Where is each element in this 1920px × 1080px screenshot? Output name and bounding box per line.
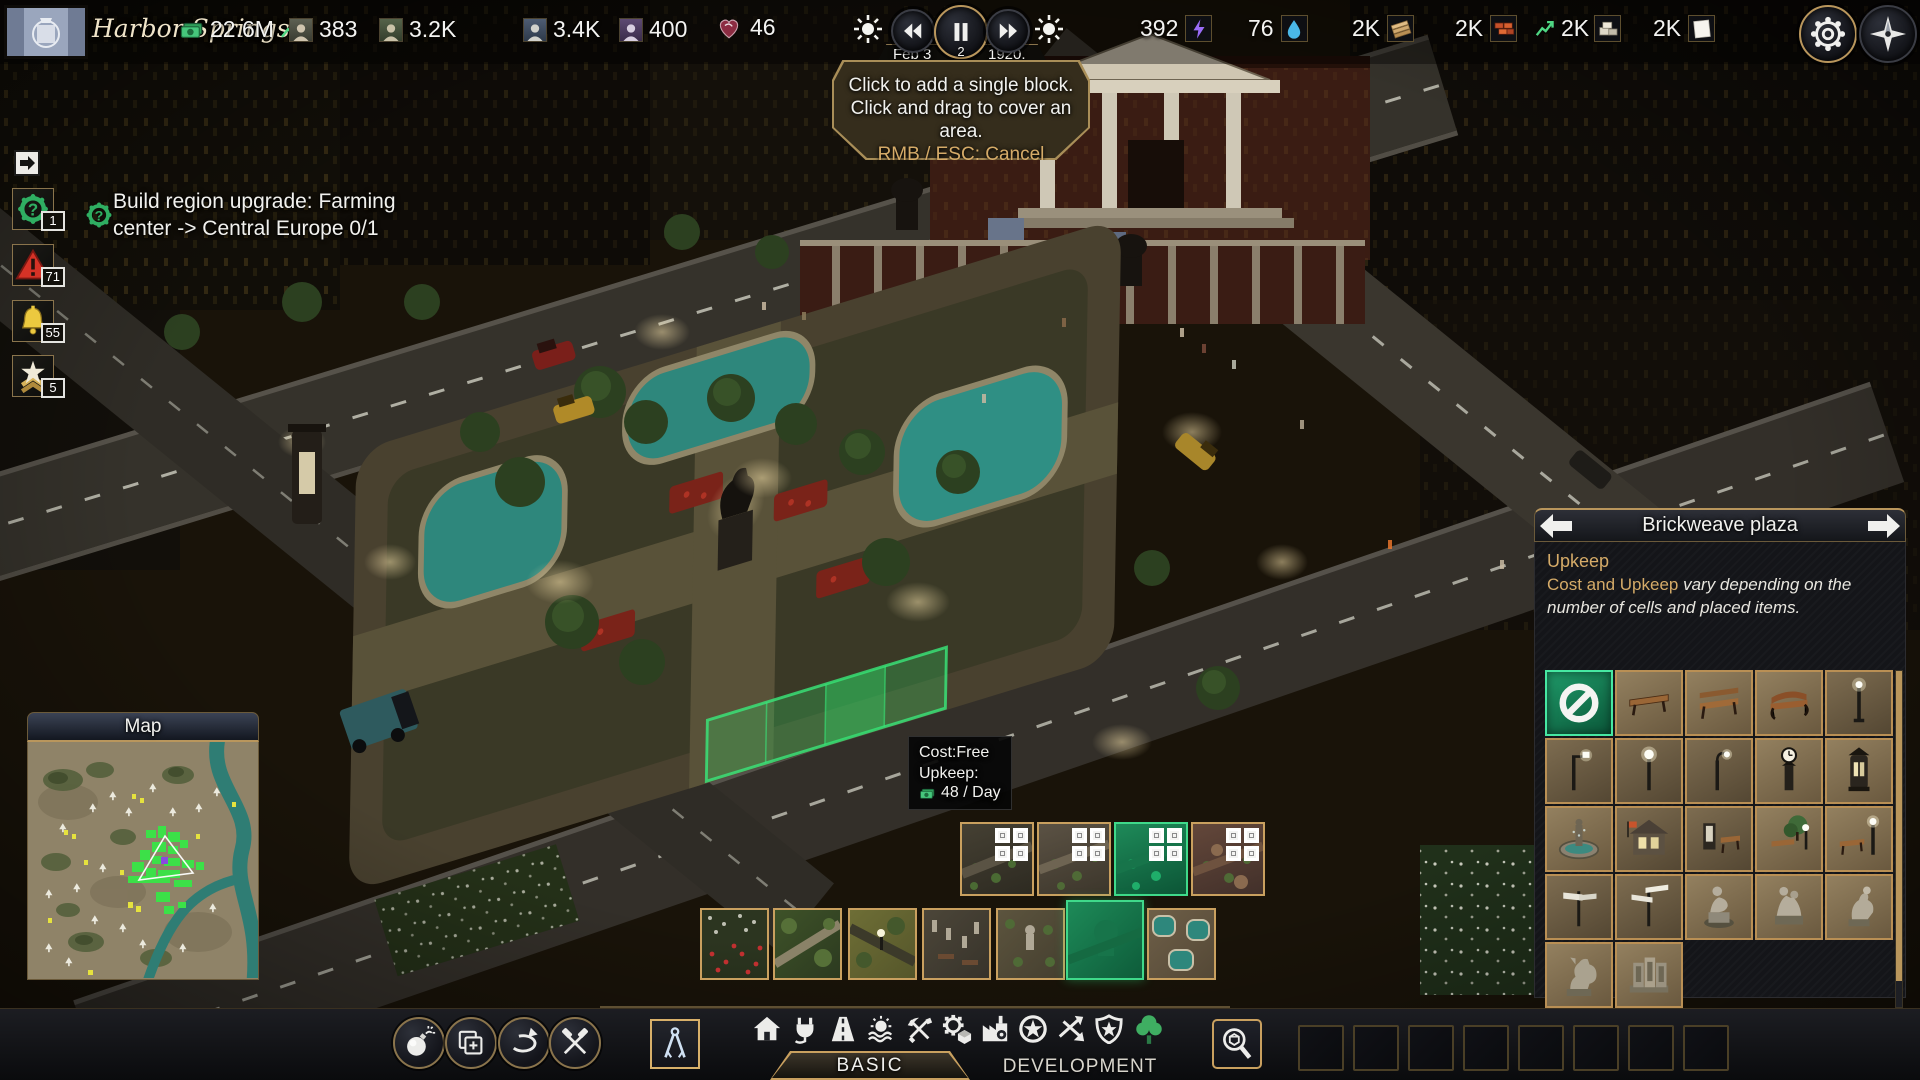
item-bench-simple[interactable] xyxy=(1615,670,1683,736)
quickbar-slot-4[interactable] xyxy=(1463,1025,1509,1071)
style-thumb-pools[interactable] xyxy=(1147,908,1216,980)
item-remove-item[interactable] xyxy=(1545,670,1613,736)
scrollbar-thumb[interactable] xyxy=(1896,671,1902,981)
game-window: Harbor Springs 22.6M 383 3.2K 3.4K 400 4… xyxy=(0,0,1920,1080)
water-icon xyxy=(1281,15,1308,42)
category-parks-icon[interactable] xyxy=(1132,1012,1166,1046)
item-street-lamp-arm[interactable] xyxy=(1545,738,1613,804)
item-signpost-cross[interactable] xyxy=(1615,874,1683,940)
elite-portrait-icon xyxy=(619,18,643,42)
upkeep-heading: Upkeep xyxy=(1547,550,1893,573)
item-bench-backed[interactable] xyxy=(1685,670,1753,736)
category-safety-icon[interactable] xyxy=(1094,1014,1124,1044)
category-residential-icon[interactable] xyxy=(752,1014,782,1044)
map-panel-header[interactable]: Map xyxy=(27,712,259,742)
item-grid xyxy=(1545,670,1893,1008)
item-street-lamp-curved[interactable] xyxy=(1685,738,1753,804)
block-variant-2[interactable] xyxy=(1037,822,1111,896)
speed-label: 2 xyxy=(953,44,969,59)
speed-up-button[interactable] xyxy=(986,9,1030,53)
stone-icon xyxy=(1594,15,1621,42)
tab-development[interactable]: DEVELOPMENT xyxy=(980,1053,1180,1080)
notifications-button[interactable]: 55 xyxy=(12,300,54,342)
quickbar-slot-5[interactable] xyxy=(1518,1025,1564,1071)
quickbar-slot-7[interactable] xyxy=(1628,1025,1674,1071)
item-statue-rearing[interactable] xyxy=(1825,874,1893,940)
style-thumb-selected[interactable] xyxy=(1066,900,1144,980)
style-thumb-park[interactable] xyxy=(848,908,917,980)
category-industry-icon[interactable] xyxy=(980,1014,1010,1044)
bricks-readout: 2K xyxy=(1455,15,1517,42)
item-bench-ornate[interactable] xyxy=(1755,670,1823,736)
build-item-panel: Brickweave plaza Upkeep Cost and Upkeep … xyxy=(1534,508,1906,998)
demolish-button[interactable] xyxy=(393,1017,445,1069)
approval-readout: 46 xyxy=(716,14,776,41)
navigation-button[interactable] xyxy=(1859,5,1917,63)
tab-basic-label: BASIC xyxy=(836,1055,903,1077)
panel-scrollbar[interactable] xyxy=(1895,670,1903,1008)
tooltip-upkeep-value: 48 / Day xyxy=(941,784,1001,802)
money-value: 22.6M xyxy=(210,16,274,43)
population-readout-4: 400 xyxy=(619,16,687,43)
cash-icon xyxy=(919,785,936,802)
item-memorial-wall[interactable] xyxy=(1615,942,1683,1008)
paper-readout: 2K xyxy=(1653,15,1715,42)
toolbar-trim xyxy=(600,1006,1230,1008)
map-panel: Map xyxy=(27,712,259,980)
planks-readout: 2K xyxy=(1352,15,1414,42)
prev-block-button[interactable] xyxy=(1539,513,1573,539)
heart-icon xyxy=(716,15,742,41)
quickbar-slot-2[interactable] xyxy=(1353,1025,1399,1071)
repair-button[interactable] xyxy=(549,1017,601,1069)
item-kiosk[interactable] xyxy=(1615,806,1683,872)
population-readout-2: 3.2K xyxy=(379,16,456,43)
warning-count: 71 xyxy=(41,267,65,287)
hint-line-2: Click and drag to cover an area. xyxy=(832,97,1090,143)
tooltip-upkeep-label: Upkeep: xyxy=(919,763,1001,784)
population-readout-3: 3.4K xyxy=(523,16,600,43)
power-readout: 392 xyxy=(1140,15,1212,42)
notification-count: 55 xyxy=(41,323,65,343)
item-street-lamp-round[interactable] xyxy=(1615,738,1683,804)
placement-hint: Click to add a single block. Click and d… xyxy=(832,60,1090,160)
gear-icon xyxy=(1809,15,1847,53)
collapse-panel-button[interactable] xyxy=(14,150,40,176)
quests-button[interactable]: 1 xyxy=(12,188,54,230)
bricks-icon xyxy=(1490,15,1517,42)
cost-tooltip: Cost:Free Upkeep: 48 / Day xyxy=(908,736,1012,810)
item-statue-group[interactable] xyxy=(1755,874,1823,940)
category-leisure-icon[interactable] xyxy=(866,1014,896,1044)
style-thumb-garden[interactable] xyxy=(773,908,842,980)
planks-icon xyxy=(1387,15,1414,42)
map-title: Map xyxy=(125,716,162,738)
item-street-clock[interactable] xyxy=(1755,738,1823,804)
category-resources-icon[interactable] xyxy=(904,1014,934,1044)
quest-count: 1 xyxy=(41,211,65,231)
worker-portrait-icon xyxy=(289,18,313,42)
next-block-button[interactable] xyxy=(1867,513,1901,539)
panel-body: Upkeep Cost and Upkeep vary depending on… xyxy=(1534,542,1906,998)
quickbar-slot-6[interactable] xyxy=(1573,1025,1619,1071)
objective-icon-wrap xyxy=(84,200,114,230)
category-bar xyxy=(752,1012,1166,1046)
item-transit-shelter[interactable] xyxy=(1685,806,1753,872)
hint-line-1: Click to add a single block. xyxy=(832,74,1090,97)
item-advertising-column[interactable] xyxy=(1825,738,1893,804)
arrow-left-icon xyxy=(1539,513,1573,539)
arrow-right-icon xyxy=(1867,513,1901,539)
block-variant-1[interactable] xyxy=(960,822,1034,896)
item-statue-equestrian[interactable] xyxy=(1545,942,1613,1008)
paper-icon xyxy=(1688,15,1715,42)
block-search-button[interactable] xyxy=(1212,1019,1262,1069)
rank-count: 5 xyxy=(41,378,65,398)
day-cycle-icon-right xyxy=(1033,13,1065,45)
block-variant-3-selected[interactable] xyxy=(1114,822,1188,896)
category-roads-icon[interactable] xyxy=(828,1014,858,1044)
tooltip-cost: Cost:Free xyxy=(919,742,1001,763)
panel-title: Brickweave plaza xyxy=(1642,514,1798,537)
block-size-2x2 xyxy=(995,828,1028,861)
magnifier-cube-icon xyxy=(1219,1026,1255,1062)
minimap[interactable] xyxy=(27,742,259,980)
item-signpost-double[interactable] xyxy=(1545,874,1613,940)
arrow-right-icon xyxy=(14,150,40,176)
category-production-icon[interactable] xyxy=(942,1014,972,1044)
bomb-icon xyxy=(402,1026,436,1060)
item-street-lamp-tall[interactable] xyxy=(1825,670,1893,736)
farmer-portrait-icon xyxy=(379,18,403,42)
citizen-portrait-icon xyxy=(523,18,547,42)
settings-button[interactable] xyxy=(1799,5,1857,63)
quest-gear-icon xyxy=(84,200,114,230)
block-size-2x2 xyxy=(1072,828,1105,861)
stone-readout: 2K xyxy=(1534,15,1621,42)
block-variant-4[interactable] xyxy=(1191,822,1265,896)
category-power-icon[interactable] xyxy=(790,1014,820,1044)
panel-header: Brickweave plaza xyxy=(1534,508,1906,542)
style-thumb-sculpture-plaza[interactable] xyxy=(996,908,1065,980)
quickbar xyxy=(1298,1025,1729,1071)
block-size-2x2 xyxy=(1226,828,1259,861)
block-size-2x2 xyxy=(1149,828,1182,861)
day-cycle-icon-left xyxy=(852,13,884,45)
quickbar-slot-1[interactable] xyxy=(1298,1025,1344,1071)
clone-button[interactable] xyxy=(445,1017,497,1069)
hammers-icon xyxy=(558,1026,592,1060)
divider-compass-icon xyxy=(656,1025,694,1063)
water-readout: 76 xyxy=(1248,15,1308,42)
city-flag[interactable] xyxy=(7,8,85,56)
tab-development-label: DEVELOPMENT xyxy=(1003,1056,1158,1078)
population-readout-1: 383 xyxy=(289,16,357,43)
blueprint-tool-button[interactable] xyxy=(650,1019,700,1069)
quickbar-slot-8[interactable] xyxy=(1683,1025,1729,1071)
objective-text[interactable]: Build region upgrade: Farming center -> … xyxy=(113,188,413,242)
move-arrow-icon xyxy=(507,1026,541,1060)
item-bench-with-tree[interactable] xyxy=(1755,806,1823,872)
quickbar-slot-3[interactable] xyxy=(1408,1025,1454,1071)
relocate-button[interactable] xyxy=(498,1017,550,1069)
item-fountain-small[interactable] xyxy=(1545,806,1613,872)
money-readout: 22.6M xyxy=(179,16,303,43)
electricity-icon xyxy=(1185,15,1212,42)
style-thumb-statues[interactable] xyxy=(922,908,991,980)
warnings-button[interactable]: 71 xyxy=(12,244,54,286)
tab-basic[interactable]: BASIC xyxy=(770,1051,970,1080)
item-bench-with-lamp[interactable] xyxy=(1825,806,1893,872)
rank-button[interactable]: 5 xyxy=(12,355,54,397)
item-statue-seated[interactable] xyxy=(1685,874,1753,940)
category-logistics-icon[interactable] xyxy=(1056,1014,1086,1044)
desc-bold: Cost and Upkeep xyxy=(1547,575,1678,594)
speed-down-button[interactable] xyxy=(891,9,935,53)
cash-icon xyxy=(179,17,205,43)
compass-icon xyxy=(1869,15,1907,53)
style-thumb-flowers[interactable] xyxy=(700,908,769,980)
category-services-icon[interactable] xyxy=(1018,1014,1048,1044)
trend-up-icon xyxy=(1534,18,1556,40)
clone-icon xyxy=(455,1027,487,1059)
